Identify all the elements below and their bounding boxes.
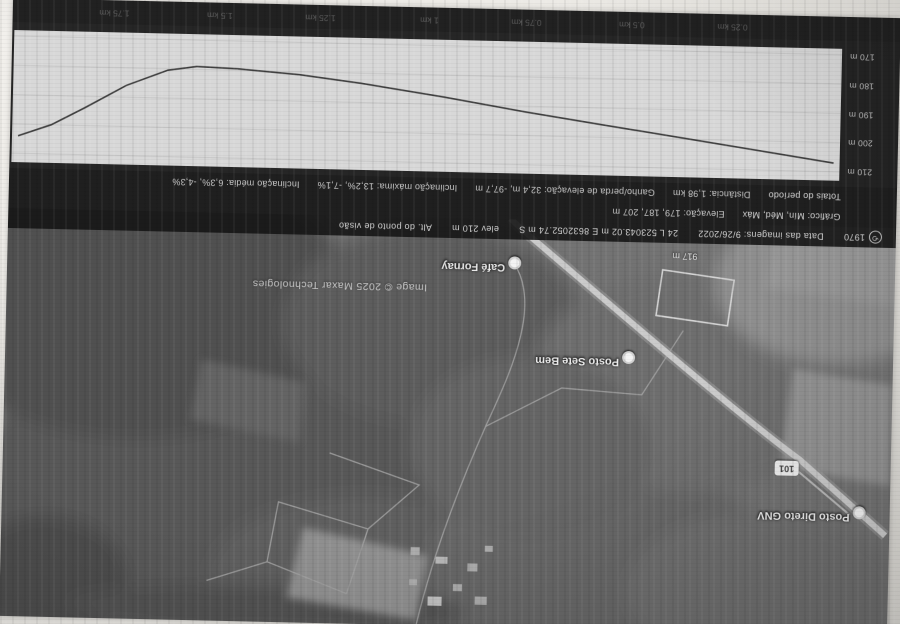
history-year: 1970 — [844, 232, 865, 242]
totals-slope-max: Inclinação máxima: 13,2%, -7,1% — [317, 180, 457, 193]
totals-label: Totais do período — [768, 190, 841, 202]
distance-axis-tick: 0.5 km — [619, 20, 645, 31]
distance-axis-tick: 1 km — [420, 15, 439, 25]
distance-axis-tick: 0.25 km — [717, 22, 747, 33]
chart-plot-area — [11, 30, 842, 181]
elevation-axis-tick: 190 m — [849, 110, 874, 121]
distance-axis-tick: 1.75 km — [99, 8, 129, 19]
spot-height-label: 917 m — [672, 251, 697, 262]
camera-altitude: Alt. do ponto de visão — [339, 220, 432, 232]
road-shield-badge: 101 — [774, 460, 798, 476]
scanned-photo: Café Fornay Posto Sete Bem Posto Direto … — [0, 0, 900, 624]
historical-imagery-widget[interactable]: ⟲ 1970 — [844, 230, 883, 244]
elevation-axis-tick: 210 m — [847, 167, 872, 178]
imagery-date: Data das imagens: 9/26/2022 — [698, 229, 824, 242]
graph-line-elevation: Elevação: 179, 187, 207 m — [612, 207, 724, 220]
cursor-elevation: elev 210 m — [452, 223, 499, 234]
distance-axis-tick: 1.25 km — [305, 13, 335, 24]
totals-distance: Distância: 1,98 km — [673, 188, 751, 200]
google-earth-screenshot: Café Fornay Posto Sete Bem Posto Direto … — [0, 0, 900, 624]
graph-line-label: Gráfico: Mín, Méd, Máx — [742, 210, 840, 222]
utm-coordinates: 24 L 523043.02 m E 8632052.74 m S — [519, 225, 678, 239]
poi-label-posto-sete-bem[interactable]: Posto Sete Bem — [535, 354, 619, 368]
elevation-curve — [18, 62, 836, 163]
elevation-axis-tick: 200 m — [848, 138, 873, 149]
elevation-profile-chart[interactable]: 210 m 200 m 190 m 180 m 170 m — [9, 22, 900, 188]
poi-label-cafe-fornay[interactable]: Café Fornay — [441, 260, 505, 273]
distance-axis-tick: 0.75 km — [511, 17, 541, 28]
poi-label-posto-direto-gnv[interactable]: Posto Direto GNV — [757, 509, 850, 523]
satellite-map[interactable]: Café Fornay Posto Sete Bem Posto Direto … — [0, 208, 896, 624]
elevation-axis: 210 m 200 m 190 m 180 m 170 m — [839, 41, 900, 188]
chart-gridlines — [12, 36, 842, 172]
elevation-axis-tick: 180 m — [849, 81, 874, 92]
totals-slope-avg: Inclinação média: 6,3%, -4,3% — [172, 177, 300, 190]
history-clock-icon[interactable]: ⟲ — [869, 231, 882, 244]
distance-axis-tick: 1.5 km — [207, 10, 233, 21]
elevation-axis-tick: 170 m — [850, 52, 875, 63]
totals-gain-loss: Ganho/perda de elevação: 32,4 m, -97,7 m — [475, 184, 655, 198]
